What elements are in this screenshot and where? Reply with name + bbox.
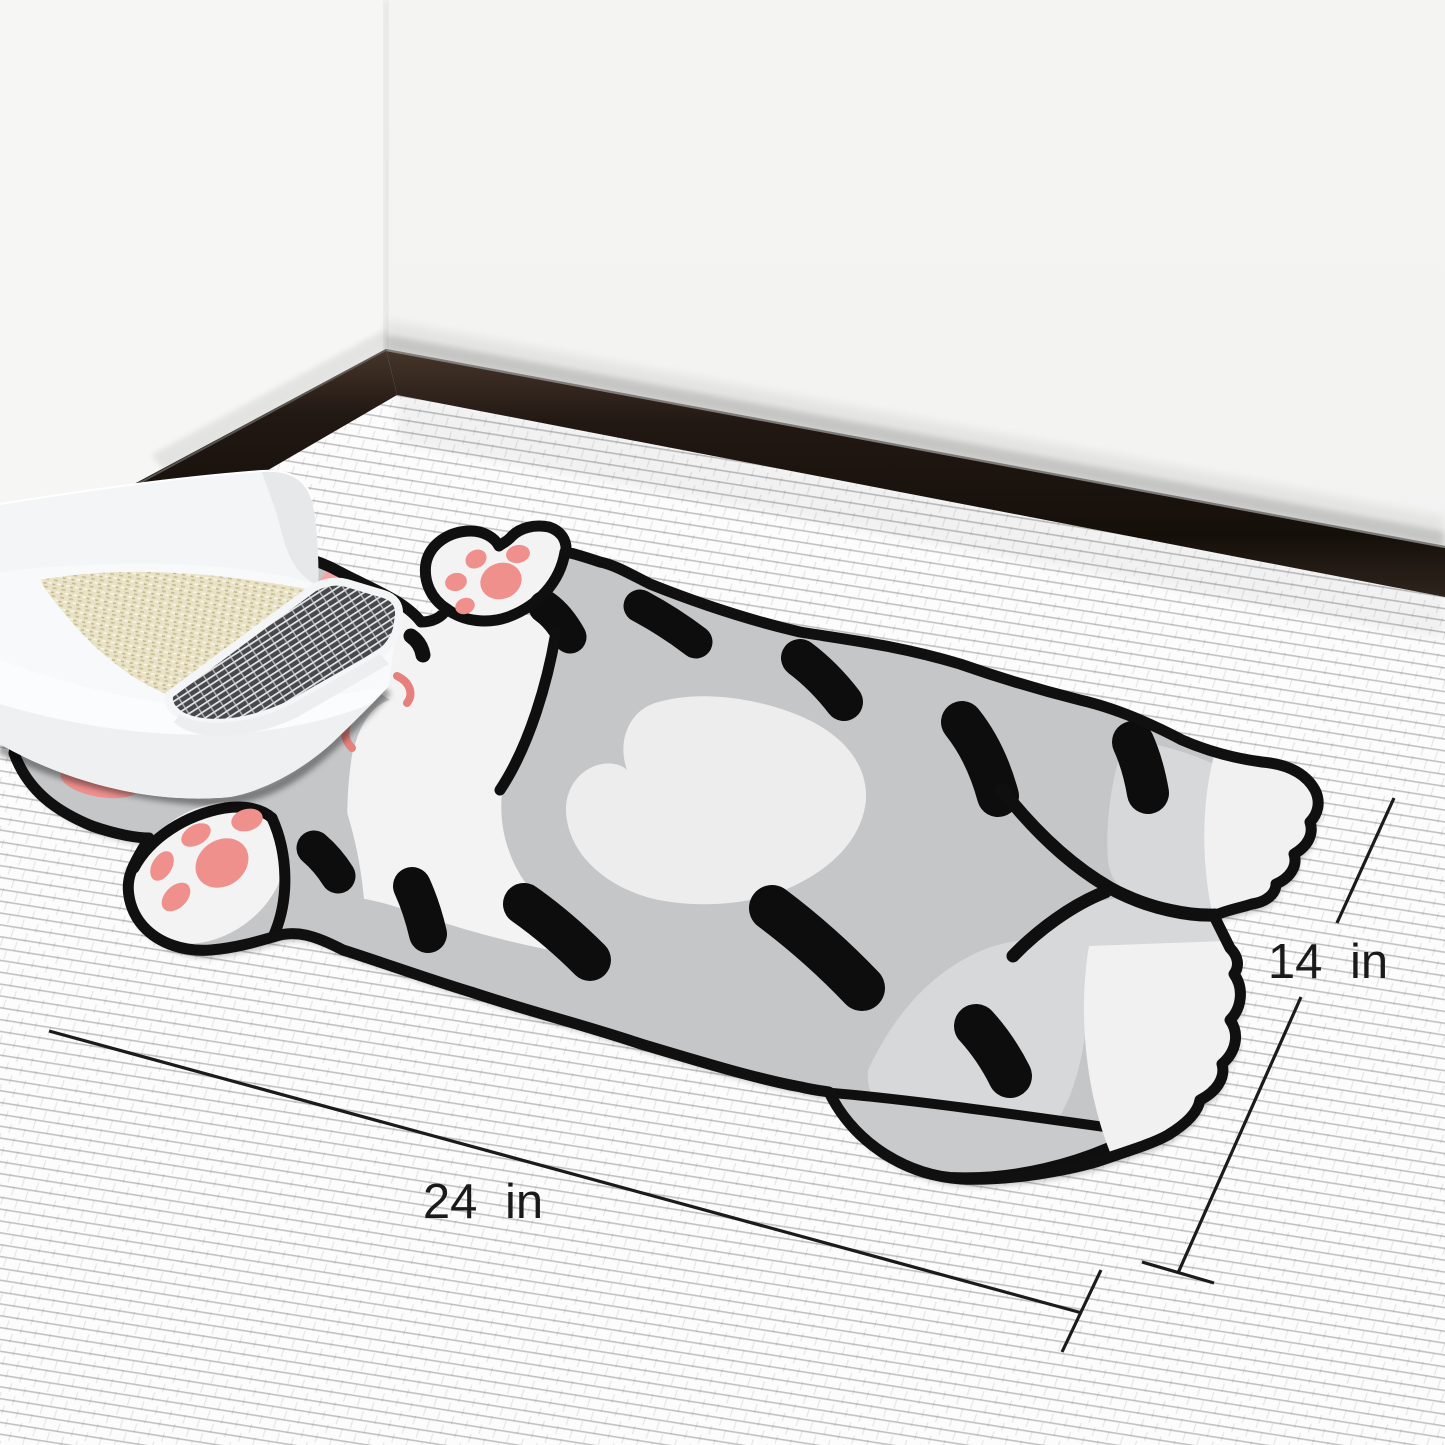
svg-text:24 in: 24 in: [423, 1175, 543, 1229]
svg-text:14 in: 14 in: [1268, 935, 1388, 989]
